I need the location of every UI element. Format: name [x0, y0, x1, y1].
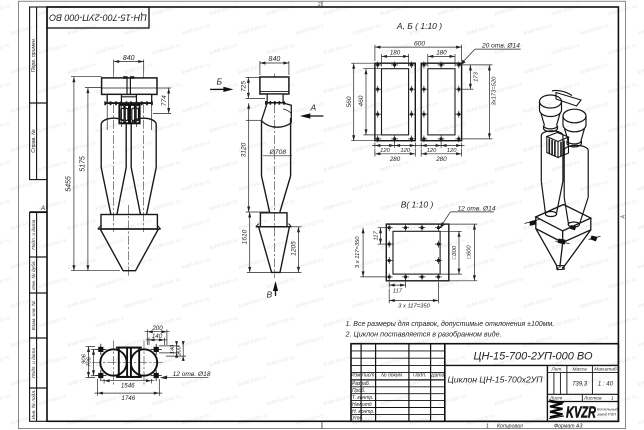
svg-text:3120: 3120: [240, 142, 247, 157]
svg-text:3 х 117=350: 3 х 117=350: [398, 304, 430, 310]
svg-text:Нач.отд: Нач.отд: [352, 402, 372, 408]
svg-text:280: 280: [435, 156, 447, 163]
svg-text:№ докум.: № докум.: [381, 373, 403, 379]
svg-text:120: 120: [400, 148, 410, 154]
svg-text:706: 706: [87, 356, 93, 366]
svg-text:□300: □300: [452, 245, 458, 259]
svg-text:Взам. инв. №: Взам. инв. №: [31, 301, 37, 331]
svg-text:117: 117: [373, 231, 379, 241]
svg-text:В: В: [267, 290, 273, 300]
svg-text:1205: 1205: [290, 241, 297, 256]
svg-text:Масштаб: Масштаб: [594, 367, 617, 373]
svg-text:Листов: Листов: [583, 396, 602, 402]
svg-text:1: 1: [486, 423, 489, 429]
svg-text:12 отв. Ø14: 12 отв. Ø14: [458, 205, 496, 212]
svg-text:140: 140: [152, 333, 163, 340]
svg-text:В( 1:10 ): В( 1:10 ): [401, 200, 434, 210]
svg-text:3 х 117=350: 3 х 117=350: [355, 236, 361, 268]
svg-text:Утб: Утб: [352, 416, 362, 422]
svg-text:Проб.: Проб.: [352, 388, 365, 394]
svg-text:Лит.: Лит.: [550, 367, 562, 373]
svg-text:Инв. № подл.: Инв. № подл.: [31, 390, 37, 420]
svg-text:280: 280: [389, 156, 401, 163]
svg-text:5455: 5455: [66, 176, 73, 192]
svg-text:1610: 1610: [241, 229, 248, 244]
svg-text:Дата: Дата: [430, 373, 444, 379]
svg-text:А: А: [40, 206, 45, 212]
svg-text:180: 180: [436, 49, 447, 56]
svg-text:Циклон ЦН-15-700х2УП: Циклон ЦН-15-700х2УП: [448, 375, 544, 385]
svg-text:1. Все размеры для справок, до: 1. Все размеры для справок, допустимые о…: [346, 320, 555, 328]
svg-text:Т. контр.: Т. контр.: [352, 395, 374, 401]
svg-text:ЦН-15-700-2УП-000 ВО: ЦН-15-700-2УП-000 ВО: [49, 13, 147, 23]
svg-text:120: 120: [447, 148, 457, 154]
svg-text:5175: 5175: [80, 156, 87, 172]
svg-text:173: 173: [474, 71, 480, 81]
svg-text:Изм: Изм: [351, 373, 361, 379]
svg-text:□600: □600: [467, 245, 473, 259]
svg-text:1: 1: [611, 396, 614, 402]
svg-text:200: 200: [177, 345, 183, 356]
svg-text:Н. контр.: Н. контр.: [352, 409, 375, 415]
svg-text:Справ. №: Справ. №: [31, 129, 37, 153]
svg-text:180: 180: [390, 49, 401, 56]
svg-text:Копировал: Копировал: [497, 423, 523, 429]
svg-text:Инв. № дубл.: Инв. № дубл.: [31, 260, 37, 290]
svg-text:1546: 1546: [121, 383, 135, 390]
svg-text:А, Б ( 1:10 ): А, Б ( 1:10 ): [396, 21, 442, 31]
svg-text:Лист: Лист: [361, 373, 375, 379]
svg-text:KVZR: KVZR: [566, 405, 597, 422]
svg-text:3x173=520: 3x173=520: [491, 76, 497, 106]
svg-text:840: 840: [269, 56, 281, 63]
svg-text:Разраб.: Разраб.: [352, 381, 370, 387]
svg-text:840: 840: [123, 55, 135, 62]
svg-text:725: 725: [240, 81, 247, 92]
svg-text:200: 200: [151, 325, 163, 332]
svg-text:ЦН-15-700-2УП-000 ВО: ЦН-15-700-2УП-000 ВО: [474, 351, 593, 363]
svg-text:774: 774: [161, 95, 168, 106]
svg-text:Котельный: Котельный: [597, 408, 619, 412]
svg-text:завод РЭП: завод РЭП: [596, 413, 616, 417]
svg-text:560: 560: [346, 96, 353, 107]
svg-text:2. Циклон поставляется в разоб: 2. Циклон поставляется в разобранном вид…: [345, 330, 502, 339]
svg-text:А: А: [621, 215, 627, 220]
svg-text:Подп. и дата: Подп. и дата: [31, 219, 37, 249]
svg-text:600: 600: [414, 40, 425, 47]
svg-text:20 отв. Ø14: 20 отв. Ø14: [481, 43, 520, 50]
svg-text:739,3: 739,3: [572, 382, 588, 388]
svg-text:1746: 1746: [121, 395, 135, 402]
svg-text:Перв. примен.: Перв. примен.: [31, 38, 37, 72]
svg-text:140: 140: [170, 344, 176, 354]
svg-text:120: 120: [427, 148, 437, 154]
svg-text:Ø708: Ø708: [268, 149, 286, 156]
svg-text:2: 2: [318, 2, 321, 8]
svg-text:12 отв. Ø18: 12 отв. Ø18: [173, 371, 211, 378]
svg-text:120: 120: [380, 148, 390, 154]
svg-text:Масса: Масса: [573, 367, 588, 373]
svg-text:117: 117: [393, 288, 403, 294]
svg-text:1 : 40: 1 : 40: [598, 382, 614, 388]
svg-text:Подп.: Подп.: [413, 373, 426, 379]
svg-text:Подп. и дата: Подп. и дата: [31, 348, 37, 378]
svg-text:А: А: [310, 103, 317, 113]
svg-text:460: 460: [358, 95, 365, 106]
svg-text:Формат А3: Формат А3: [554, 423, 582, 429]
svg-text:Б: Б: [217, 77, 223, 87]
